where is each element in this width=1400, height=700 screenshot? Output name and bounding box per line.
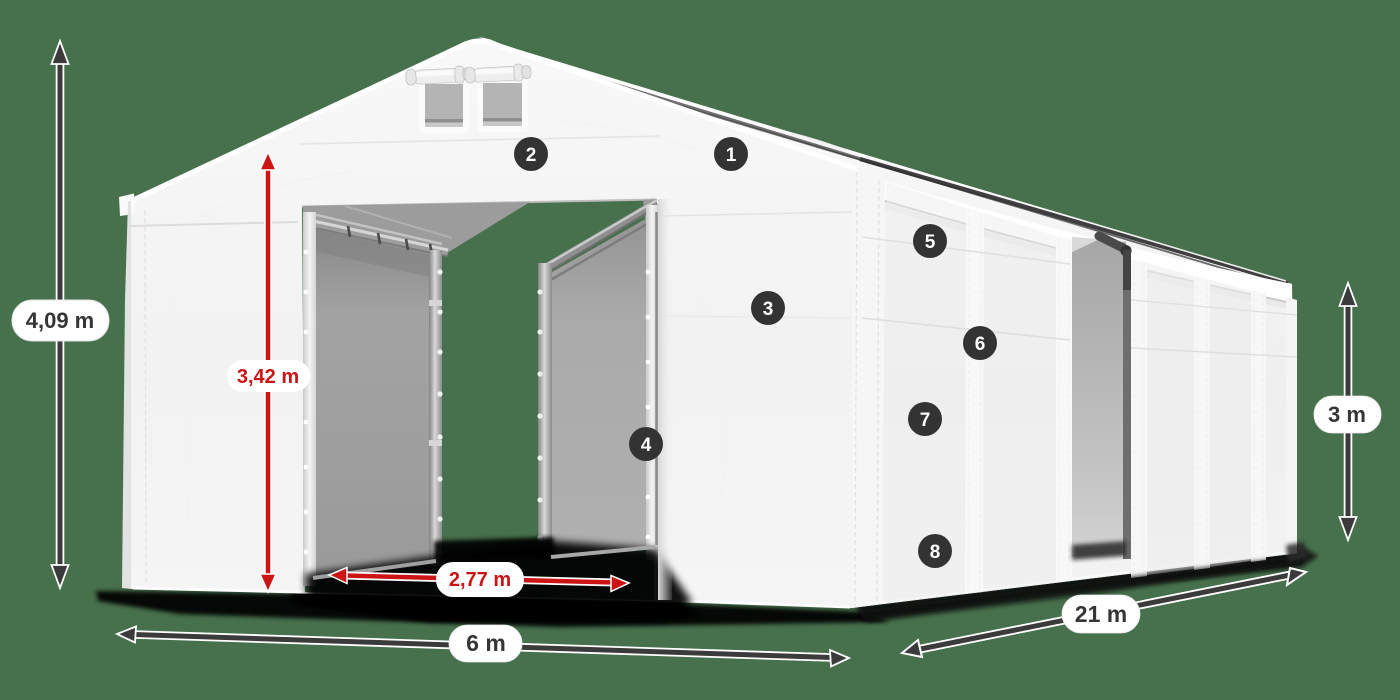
svg-text:3 m: 3 m (1328, 402, 1366, 427)
svg-text:7: 7 (920, 410, 931, 431)
svg-text:5: 5 (925, 232, 936, 253)
svg-text:4,09 m: 4,09 m (26, 308, 95, 333)
svg-text:2,77 m: 2,77 m (449, 569, 511, 591)
svg-text:3: 3 (763, 299, 774, 320)
svg-text:1: 1 (726, 145, 737, 166)
svg-text:2: 2 (526, 145, 537, 166)
svg-text:6: 6 (975, 334, 986, 355)
svg-text:21 m: 21 m (1075, 601, 1127, 627)
svg-text:4: 4 (641, 435, 652, 456)
svg-text:3,42 m: 3,42 m (237, 366, 299, 388)
svg-text:6 m: 6 m (466, 630, 506, 656)
svg-text:8: 8 (930, 542, 941, 563)
